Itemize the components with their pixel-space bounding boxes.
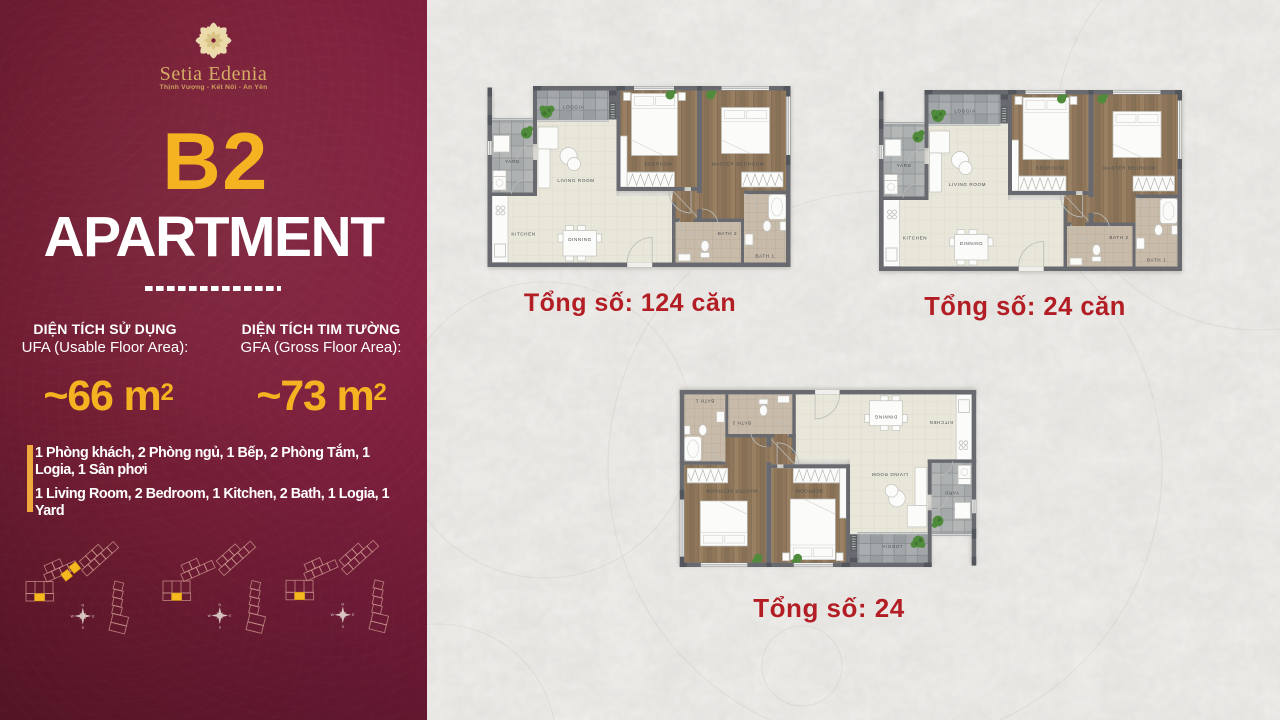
- svg-text:N: N: [82, 604, 85, 608]
- svg-text:W: W: [71, 614, 75, 618]
- svg-text:S: S: [82, 626, 85, 630]
- svg-text:E: E: [92, 614, 95, 618]
